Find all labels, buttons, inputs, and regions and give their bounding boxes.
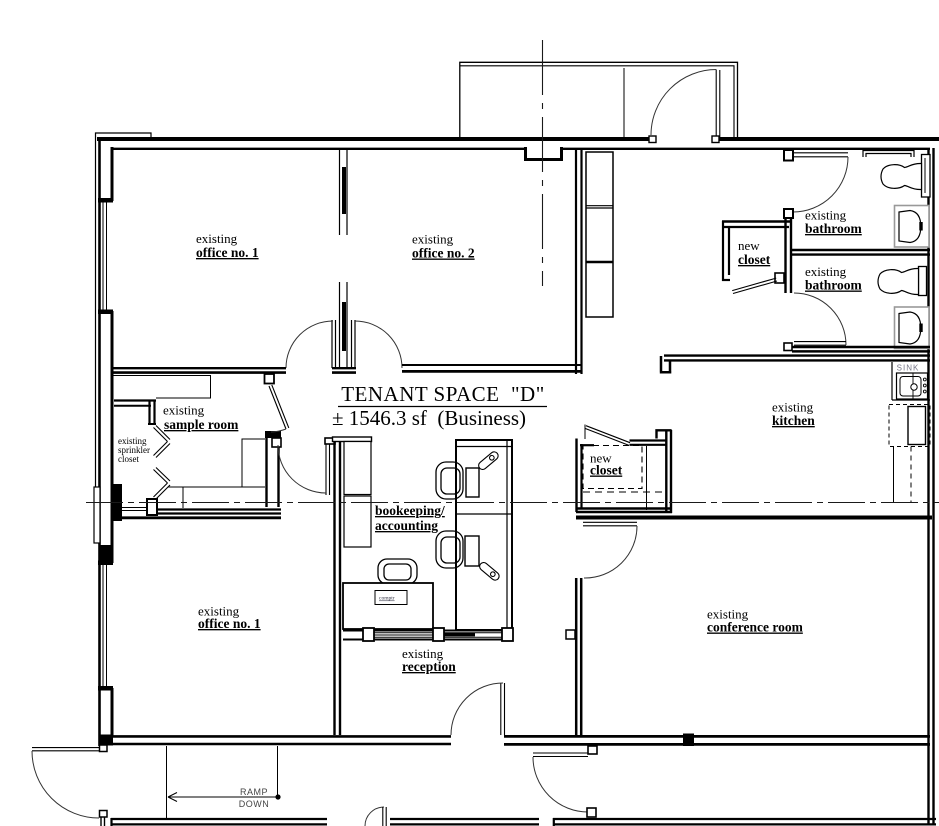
- svg-text:comptr: comptr: [379, 596, 395, 602]
- svg-text:existing: existing: [196, 231, 238, 246]
- svg-text:closet: closet: [738, 252, 771, 267]
- svg-text:RAMP: RAMP: [240, 787, 268, 797]
- svg-text:closet: closet: [118, 454, 139, 464]
- svg-text:DOWN: DOWN: [239, 799, 270, 809]
- svg-text:bathroom: bathroom: [805, 278, 863, 293]
- svg-text:SINK: SINK: [897, 364, 920, 373]
- svg-text:TENANT SPACE "D": TENANT SPACE "D": [341, 382, 545, 406]
- svg-text:accounting: accounting: [375, 518, 438, 533]
- svg-text:office no. 1: office no. 1: [196, 245, 259, 260]
- svg-text:office no. 1: office no. 1: [198, 616, 261, 631]
- svg-text:existing: existing: [163, 403, 205, 418]
- svg-text:sample room: sample room: [164, 417, 239, 432]
- svg-text:reception: reception: [402, 659, 456, 674]
- svg-text:closet: closet: [590, 463, 623, 478]
- svg-text:bathroom: bathroom: [805, 221, 863, 236]
- svg-text:conference room: conference room: [707, 620, 804, 635]
- svg-text:existing: existing: [412, 232, 454, 247]
- svg-text:± 1546.3 sf (Business): ± 1546.3 sf (Business): [332, 406, 526, 430]
- svg-text:bookeeping/: bookeeping/: [375, 503, 445, 518]
- svg-text:new: new: [738, 238, 760, 253]
- svg-text:kitchen: kitchen: [772, 413, 815, 428]
- svg-text:office no. 2: office no. 2: [412, 246, 475, 261]
